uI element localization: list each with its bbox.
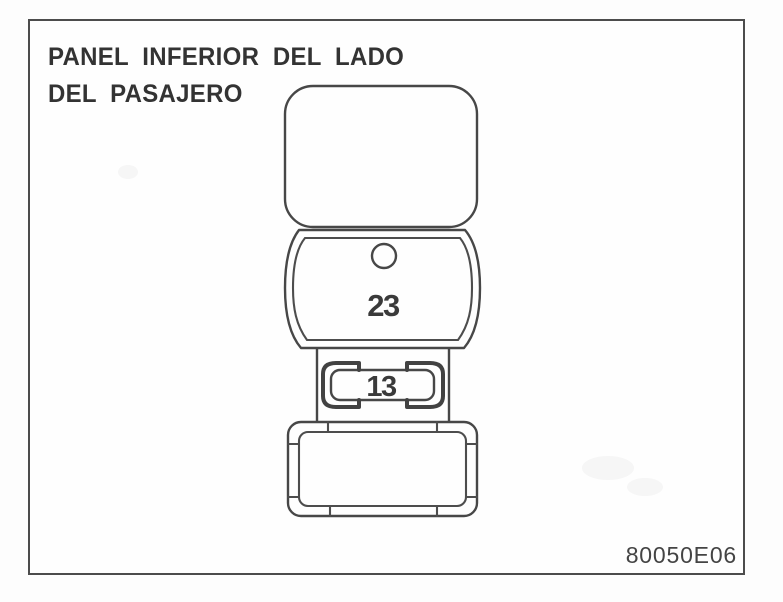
scanned-manual-page: PANEL INFERIOR DEL LADO DEL PASAJERO 23 …	[0, 0, 783, 602]
relay-number-label: 23	[367, 288, 400, 323]
fuse-number-label: 13	[366, 371, 397, 403]
scan-smudge	[118, 165, 138, 179]
figure-code: 80050E06	[626, 542, 737, 569]
bottom-connector-outer-outline	[288, 422, 477, 516]
component-diagram-svg: 23 13	[0, 0, 783, 602]
scan-smudge	[627, 478, 663, 496]
top-cover-outline	[285, 86, 477, 227]
scan-smudge	[582, 456, 634, 480]
